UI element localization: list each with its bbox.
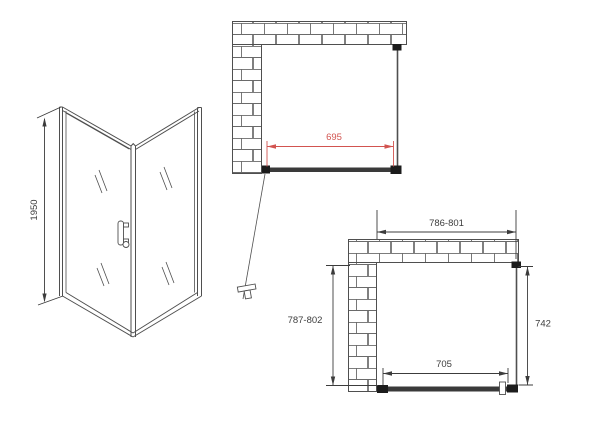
corner-block-right [507,385,518,393]
dim-label-height: 1950 [29,199,40,220]
brick-wall-top [233,22,407,45]
wall-bracket [393,44,402,51]
dim-label-overall-width: 786-801 [429,218,464,229]
wall-bracket [512,262,522,269]
brick-wall-left [349,263,377,392]
brick-wall-top [349,240,519,263]
corner-block-left [377,385,388,393]
shower-enclosure-technical-drawing: 1950 [0,0,600,424]
door-glass-bar [378,387,518,392]
door-glass-bar [263,168,400,173]
background [0,0,600,424]
dim-label-overall-depth: 787-802 [288,315,323,326]
dim-label-door-width: 705 [436,359,452,370]
door-handle-plan [500,382,506,395]
corner-block-left [262,166,270,174]
technical-drawing: 1950 [0,0,600,424]
dim-label-side-panel: 742 [535,319,551,330]
dim-label-door-width: 695 [326,132,342,143]
corner-block-right [391,166,402,175]
drawing-canvas: 1950 [0,0,600,424]
brick-wall-left [233,45,262,174]
